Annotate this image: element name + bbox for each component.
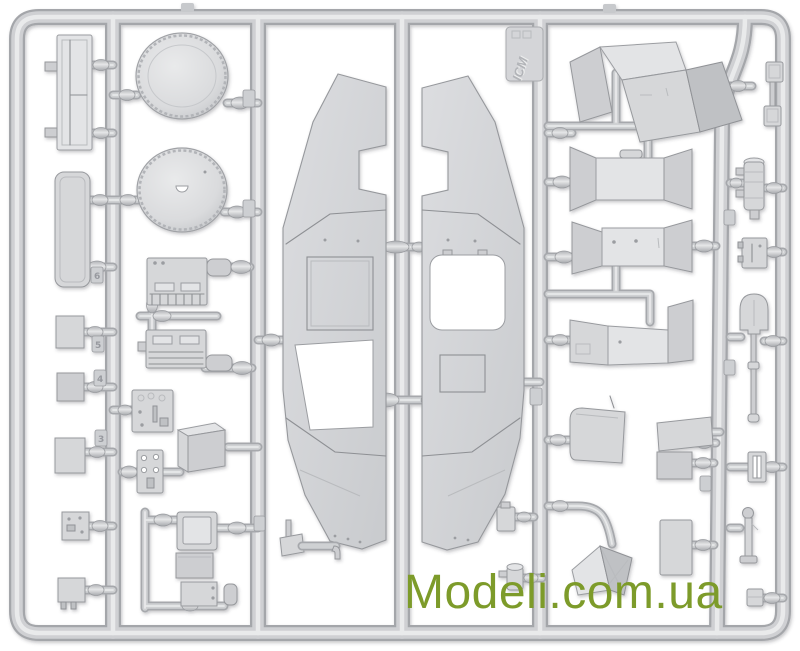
turret-ring-disc-part xyxy=(136,33,228,119)
detail-plate-part xyxy=(62,512,89,540)
small-box-part xyxy=(58,578,85,609)
square-plate-part xyxy=(55,438,85,473)
bracket-rail-part xyxy=(748,452,766,482)
fender-part xyxy=(570,396,625,463)
square-plate-part xyxy=(57,373,84,401)
rounded-panel-part xyxy=(55,172,90,287)
engine-block-part xyxy=(147,258,231,305)
pump-tool-part xyxy=(740,508,758,564)
flat-plate-part xyxy=(657,417,713,451)
shovel-part xyxy=(740,294,768,422)
folded-side-plate-part xyxy=(570,300,693,365)
part-number: 6 xyxy=(94,272,100,282)
square-plate-part xyxy=(56,316,84,348)
small-box-part xyxy=(497,502,515,531)
firewall-panel-part xyxy=(132,390,173,432)
product-photo: 6 5 4 3 ICM ICM Modeli.com.ua xyxy=(0,0,800,651)
butterfly-plate-part xyxy=(570,147,692,211)
brand-tab: ICM ICM xyxy=(506,27,543,83)
part-number: 3 xyxy=(98,435,104,445)
turret-ring-disc-part xyxy=(137,148,227,232)
engine-block-part xyxy=(138,330,232,371)
part-number: 4 xyxy=(97,375,103,385)
flat-plate-part xyxy=(657,452,692,479)
watermark-text: Modeli.com.ua xyxy=(404,569,723,617)
small-box-part xyxy=(747,589,763,606)
left-hull-side-part xyxy=(283,74,386,549)
part-number: 5 xyxy=(95,341,101,351)
hole-panel-part xyxy=(137,450,163,493)
hatch-plate-part xyxy=(45,35,92,150)
hinged-plate-part xyxy=(738,238,767,268)
sprue-photo: 6 5 4 3 ICM ICM xyxy=(0,0,800,651)
left-column-parts xyxy=(45,35,92,609)
muffler-part xyxy=(736,158,764,219)
right-hull-side-part xyxy=(422,76,524,550)
visor-plate-part xyxy=(572,220,692,274)
stowage-box-part xyxy=(178,423,225,472)
